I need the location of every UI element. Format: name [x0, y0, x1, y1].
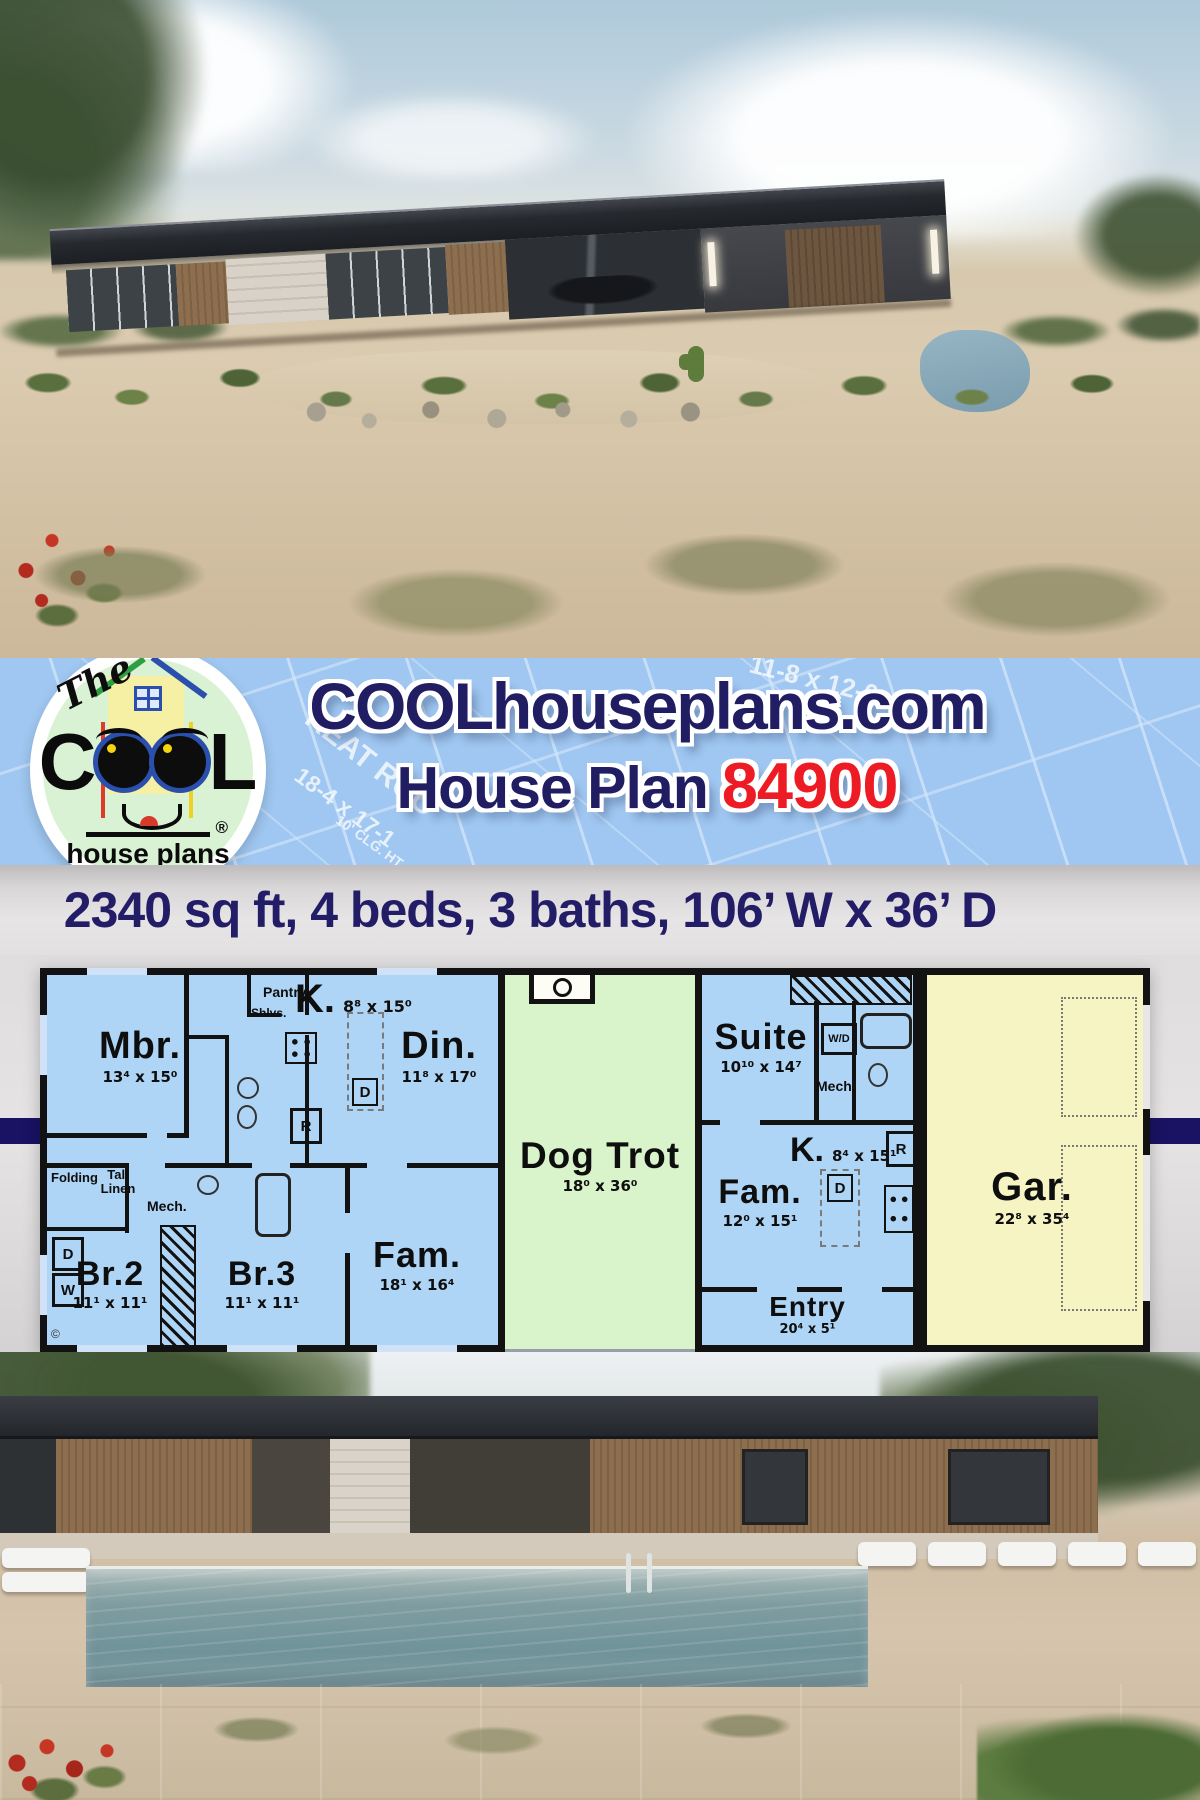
stone-pillar	[330, 1439, 410, 1533]
toilet-icon	[237, 1105, 257, 1129]
room-kitchen-left: K. 8⁸ x 15⁰	[295, 979, 412, 1019]
mech-label: Mech.	[816, 1079, 856, 1094]
kitchen-island: D	[820, 1169, 860, 1247]
house-walls	[0, 1439, 1098, 1533]
room-entry: Entry 20⁴ x 5¹	[712, 1293, 903, 1337]
fridge-box: R	[290, 1108, 322, 1144]
window-wall	[325, 247, 448, 320]
wall	[345, 1163, 350, 1213]
wall	[47, 1133, 147, 1138]
sconce-light	[707, 242, 716, 286]
shelves-label: Shlvs.	[251, 1007, 286, 1020]
glass-facade	[505, 229, 705, 320]
house-window-icon	[134, 686, 162, 711]
wall	[165, 1163, 252, 1168]
sconce-light	[930, 230, 939, 274]
pool-ladder-icon	[626, 1553, 652, 1593]
registered-mark: ®	[215, 818, 228, 838]
site-title: COOLhouseplans.com	[272, 668, 1022, 744]
bathtub-icon	[860, 1013, 912, 1049]
closet-wall	[790, 975, 912, 1005]
stats-bar: 2340 sq ft, 4 beds, 3 baths, 106’ W x 36…	[0, 865, 1200, 955]
cloud	[300, 90, 600, 180]
lounge-chair	[1138, 1542, 1196, 1566]
wood-siding	[785, 225, 885, 308]
room-garage: Gar. 22⁸ x 35⁴	[957, 1167, 1107, 1228]
window	[742, 1449, 808, 1525]
range-icon	[285, 1032, 317, 1064]
folding-label: Folding	[51, 1171, 98, 1185]
landscape-rocks	[290, 390, 730, 434]
garage-door-track	[1061, 997, 1137, 1117]
foreground-grasses	[0, 470, 1200, 658]
porch-light-icon	[529, 975, 595, 1004]
logo-house-plans-label: house plans	[30, 838, 266, 865]
wall	[702, 1120, 720, 1125]
entry-garage-facade	[701, 215, 951, 313]
car-silhouette	[547, 273, 658, 307]
wall	[760, 1120, 913, 1125]
garage-wing: Gar. 22⁸ x 35⁴	[920, 968, 1150, 1352]
sunglasses-icon	[149, 731, 211, 793]
copyright-mark: ©	[51, 1327, 60, 1341]
logo-letter-l: L	[208, 730, 257, 794]
dark-end-wall	[0, 1439, 56, 1533]
stats-line: 2340 sq ft, 4 beds, 3 baths, 106’ W x 36…	[64, 881, 1136, 939]
room-mbr: Mbr. 13⁴ x 15⁰	[65, 1027, 215, 1086]
room-family-left: Fam. 18¹ x 16⁴	[342, 1237, 492, 1294]
wall	[882, 1287, 913, 1292]
tree	[1070, 170, 1200, 300]
swimming-pool	[86, 1566, 868, 1687]
wall	[407, 1163, 498, 1168]
floor-plan: D R D W Mbr. 13⁴ x 15⁰ Pantry Shlvs. K.	[40, 968, 1150, 1352]
stone-wall	[225, 254, 329, 325]
toilet-icon	[868, 1063, 888, 1087]
room-kitchen-right: K. 8⁴ x 15¹	[790, 1133, 897, 1167]
left-wing: D R D W Mbr. 13⁴ x 15⁰ Pantry Shlvs. K.	[40, 968, 505, 1352]
lounge-chair	[928, 1542, 986, 1566]
closet-wall	[160, 1225, 196, 1349]
lounge-chair	[998, 1542, 1056, 1566]
exterior-photo-bottom	[0, 1352, 1200, 1800]
flat-roof	[0, 1396, 1098, 1439]
sink-icon	[197, 1175, 219, 1195]
range-icon	[884, 1185, 914, 1233]
wood-siding	[445, 242, 509, 315]
wall	[167, 1133, 189, 1138]
room-family-right: Fam. 12⁰ x 15¹	[704, 1175, 816, 1230]
sunglasses-icon	[93, 731, 155, 793]
wall	[47, 1227, 129, 1231]
brand-banner: 11-8 x 12-0 REAT ROO 18-4 x 17-1 10' CLG…	[0, 658, 1200, 865]
lounge-chair	[2, 1572, 90, 1592]
plan-title: House Plan84900	[272, 748, 1022, 823]
dog-trot-breezeway: Dog Trot 18⁰ x 36⁰	[505, 968, 695, 1352]
fridge-box: R	[886, 1131, 916, 1167]
glass-doors	[252, 1439, 590, 1533]
lounge-chair	[2, 1548, 90, 1568]
floor-plan-section: D R D W Mbr. 13⁴ x 15⁰ Pantry Shlvs. K.	[0, 955, 1200, 1352]
cactus	[688, 346, 704, 382]
wall	[290, 1163, 367, 1168]
bathtub-icon	[255, 1173, 291, 1237]
logo-letter-c: C	[39, 730, 97, 794]
mech-label: Mech.	[147, 1199, 187, 1214]
banner-titles: COOLhouseplans.com House Plan84900	[272, 668, 1022, 823]
wall	[852, 1001, 856, 1123]
lounge-chair	[1068, 1542, 1126, 1566]
wall	[702, 1287, 757, 1292]
garage-door-opening	[1143, 1155, 1150, 1301]
wall	[225, 1035, 229, 1163]
cool-house-plans-logo: The C L ® house plans company	[30, 658, 266, 865]
washer-dryer-box: W/D	[821, 1023, 857, 1055]
room-dog-trot: Dog Trot 18⁰ x 36⁰	[505, 1137, 695, 1195]
room-br2: Br.2 11¹ x 11¹	[55, 1257, 165, 1312]
right-wing: W/D Mech. Suite 10¹⁰ x 14⁷ K. 8⁴ x 15¹ R…	[695, 968, 920, 1352]
room-dining: Din. 11⁸ x 17⁰	[379, 1027, 499, 1086]
exterior-photo-top	[0, 0, 1200, 658]
house-plan-pin: 11-8 x 12-0 REAT ROO 18-4 x 17-1 10' CLG…	[0, 0, 1200, 1800]
grass-tufts	[170, 1690, 890, 1762]
red-flowers	[0, 1718, 242, 1800]
dishwasher-box: D	[827, 1174, 853, 1202]
sink-icon	[237, 1077, 259, 1099]
window-wall	[66, 264, 179, 332]
lounge-chair	[858, 1542, 916, 1566]
plan-label: House Plan	[396, 755, 707, 821]
garage-door-opening	[1143, 1005, 1150, 1109]
shrub	[977, 1708, 1200, 1800]
room-br3: Br.3 11¹ x 11¹	[202, 1257, 322, 1312]
tall-linen-label: Tall Linen	[99, 1168, 137, 1195]
dishwasher-box: D	[352, 1078, 378, 1106]
wood-siding	[176, 261, 229, 326]
room-suite: Suite 10¹⁰ x 14⁷	[706, 1019, 816, 1076]
logo-cool-word: C L	[30, 730, 266, 794]
plan-number: 84900	[722, 749, 898, 822]
window	[948, 1449, 1050, 1525]
